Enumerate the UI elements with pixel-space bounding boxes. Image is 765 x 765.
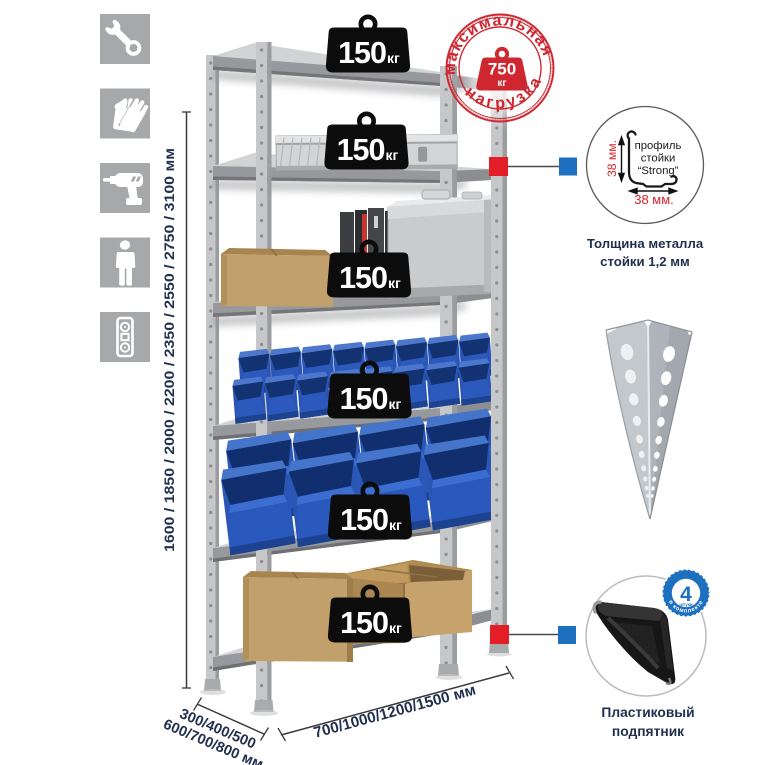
svg-text:стойки 1,2 мм: стойки 1,2 мм — [600, 254, 690, 269]
svg-text:профиль: профиль — [635, 140, 682, 152]
svg-text:кг: кг — [497, 78, 506, 89]
svg-text:стойки: стойки — [641, 153, 676, 165]
svg-text:38 мм.: 38 мм. — [634, 192, 674, 207]
svg-text:38 мм.: 38 мм. — [605, 140, 619, 177]
svg-text:штуки: штуки — [679, 602, 693, 607]
svg-text:Толщина металла: Толщина металла — [587, 236, 704, 251]
svg-text:750: 750 — [488, 60, 516, 79]
svg-text:подпятник: подпятник — [612, 724, 684, 739]
svg-text:1600 / 1850 / 2000 / 2200 / 23: 1600 / 1850 / 2000 / 2200 / 2350 / 2550 … — [162, 148, 178, 552]
svg-text:Пластиковый: Пластиковый — [601, 705, 694, 720]
svg-text:“Strong”: “Strong” — [638, 165, 679, 177]
